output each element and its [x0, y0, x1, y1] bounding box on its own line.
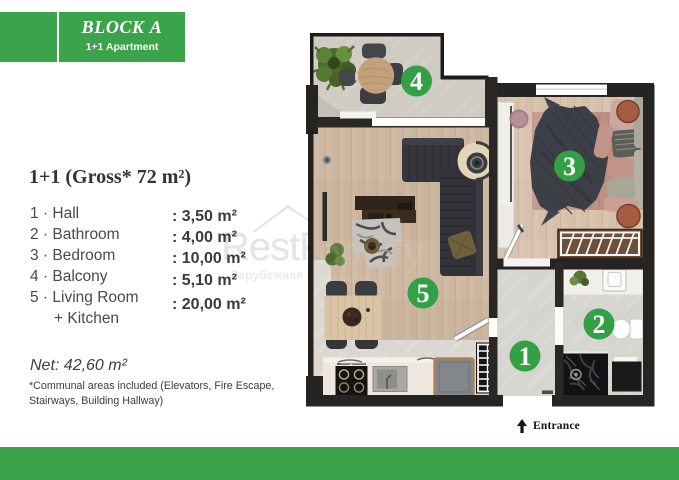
- svg-text:4: 4: [410, 67, 423, 96]
- svg-text:3: 3: [563, 152, 576, 181]
- svg-text:1: 1: [519, 342, 532, 371]
- svg-text:движимость: движимость: [310, 272, 381, 284]
- svg-text:5: 5: [417, 279, 430, 308]
- svg-text:2: 2: [593, 310, 606, 339]
- svg-text:operty: operty: [318, 230, 424, 274]
